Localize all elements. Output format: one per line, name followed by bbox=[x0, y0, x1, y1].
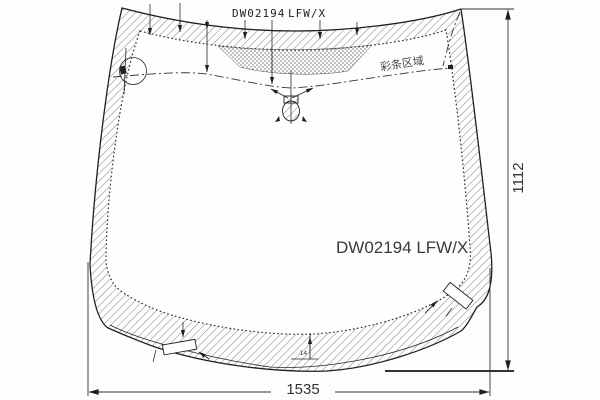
dash-end-marker bbox=[448, 65, 453, 69]
windshield-technical-drawing: 14 1112 1535 DW02194 LFW/X 彩条区域 DW02194 … bbox=[0, 0, 600, 400]
height-dimension-value: 1112 bbox=[510, 162, 527, 193]
center-part-label: DW02194 LFW/X bbox=[336, 238, 468, 257]
band-width-value: 14 bbox=[300, 350, 308, 357]
mirror-mount-bracket bbox=[275, 70, 307, 124]
top-part-variant: LFW/X bbox=[288, 7, 326, 20]
drawing-svg: 14 1112 1535 DW02194 LFW/X 彩条区域 DW02194 … bbox=[0, 0, 600, 400]
top-part-code: DW02194 bbox=[232, 7, 285, 20]
windshield-inner-boundary bbox=[106, 30, 470, 334]
shade-band-label: 彩条区域 bbox=[379, 53, 425, 74]
width-dimension-value: 1535 bbox=[286, 381, 319, 398]
